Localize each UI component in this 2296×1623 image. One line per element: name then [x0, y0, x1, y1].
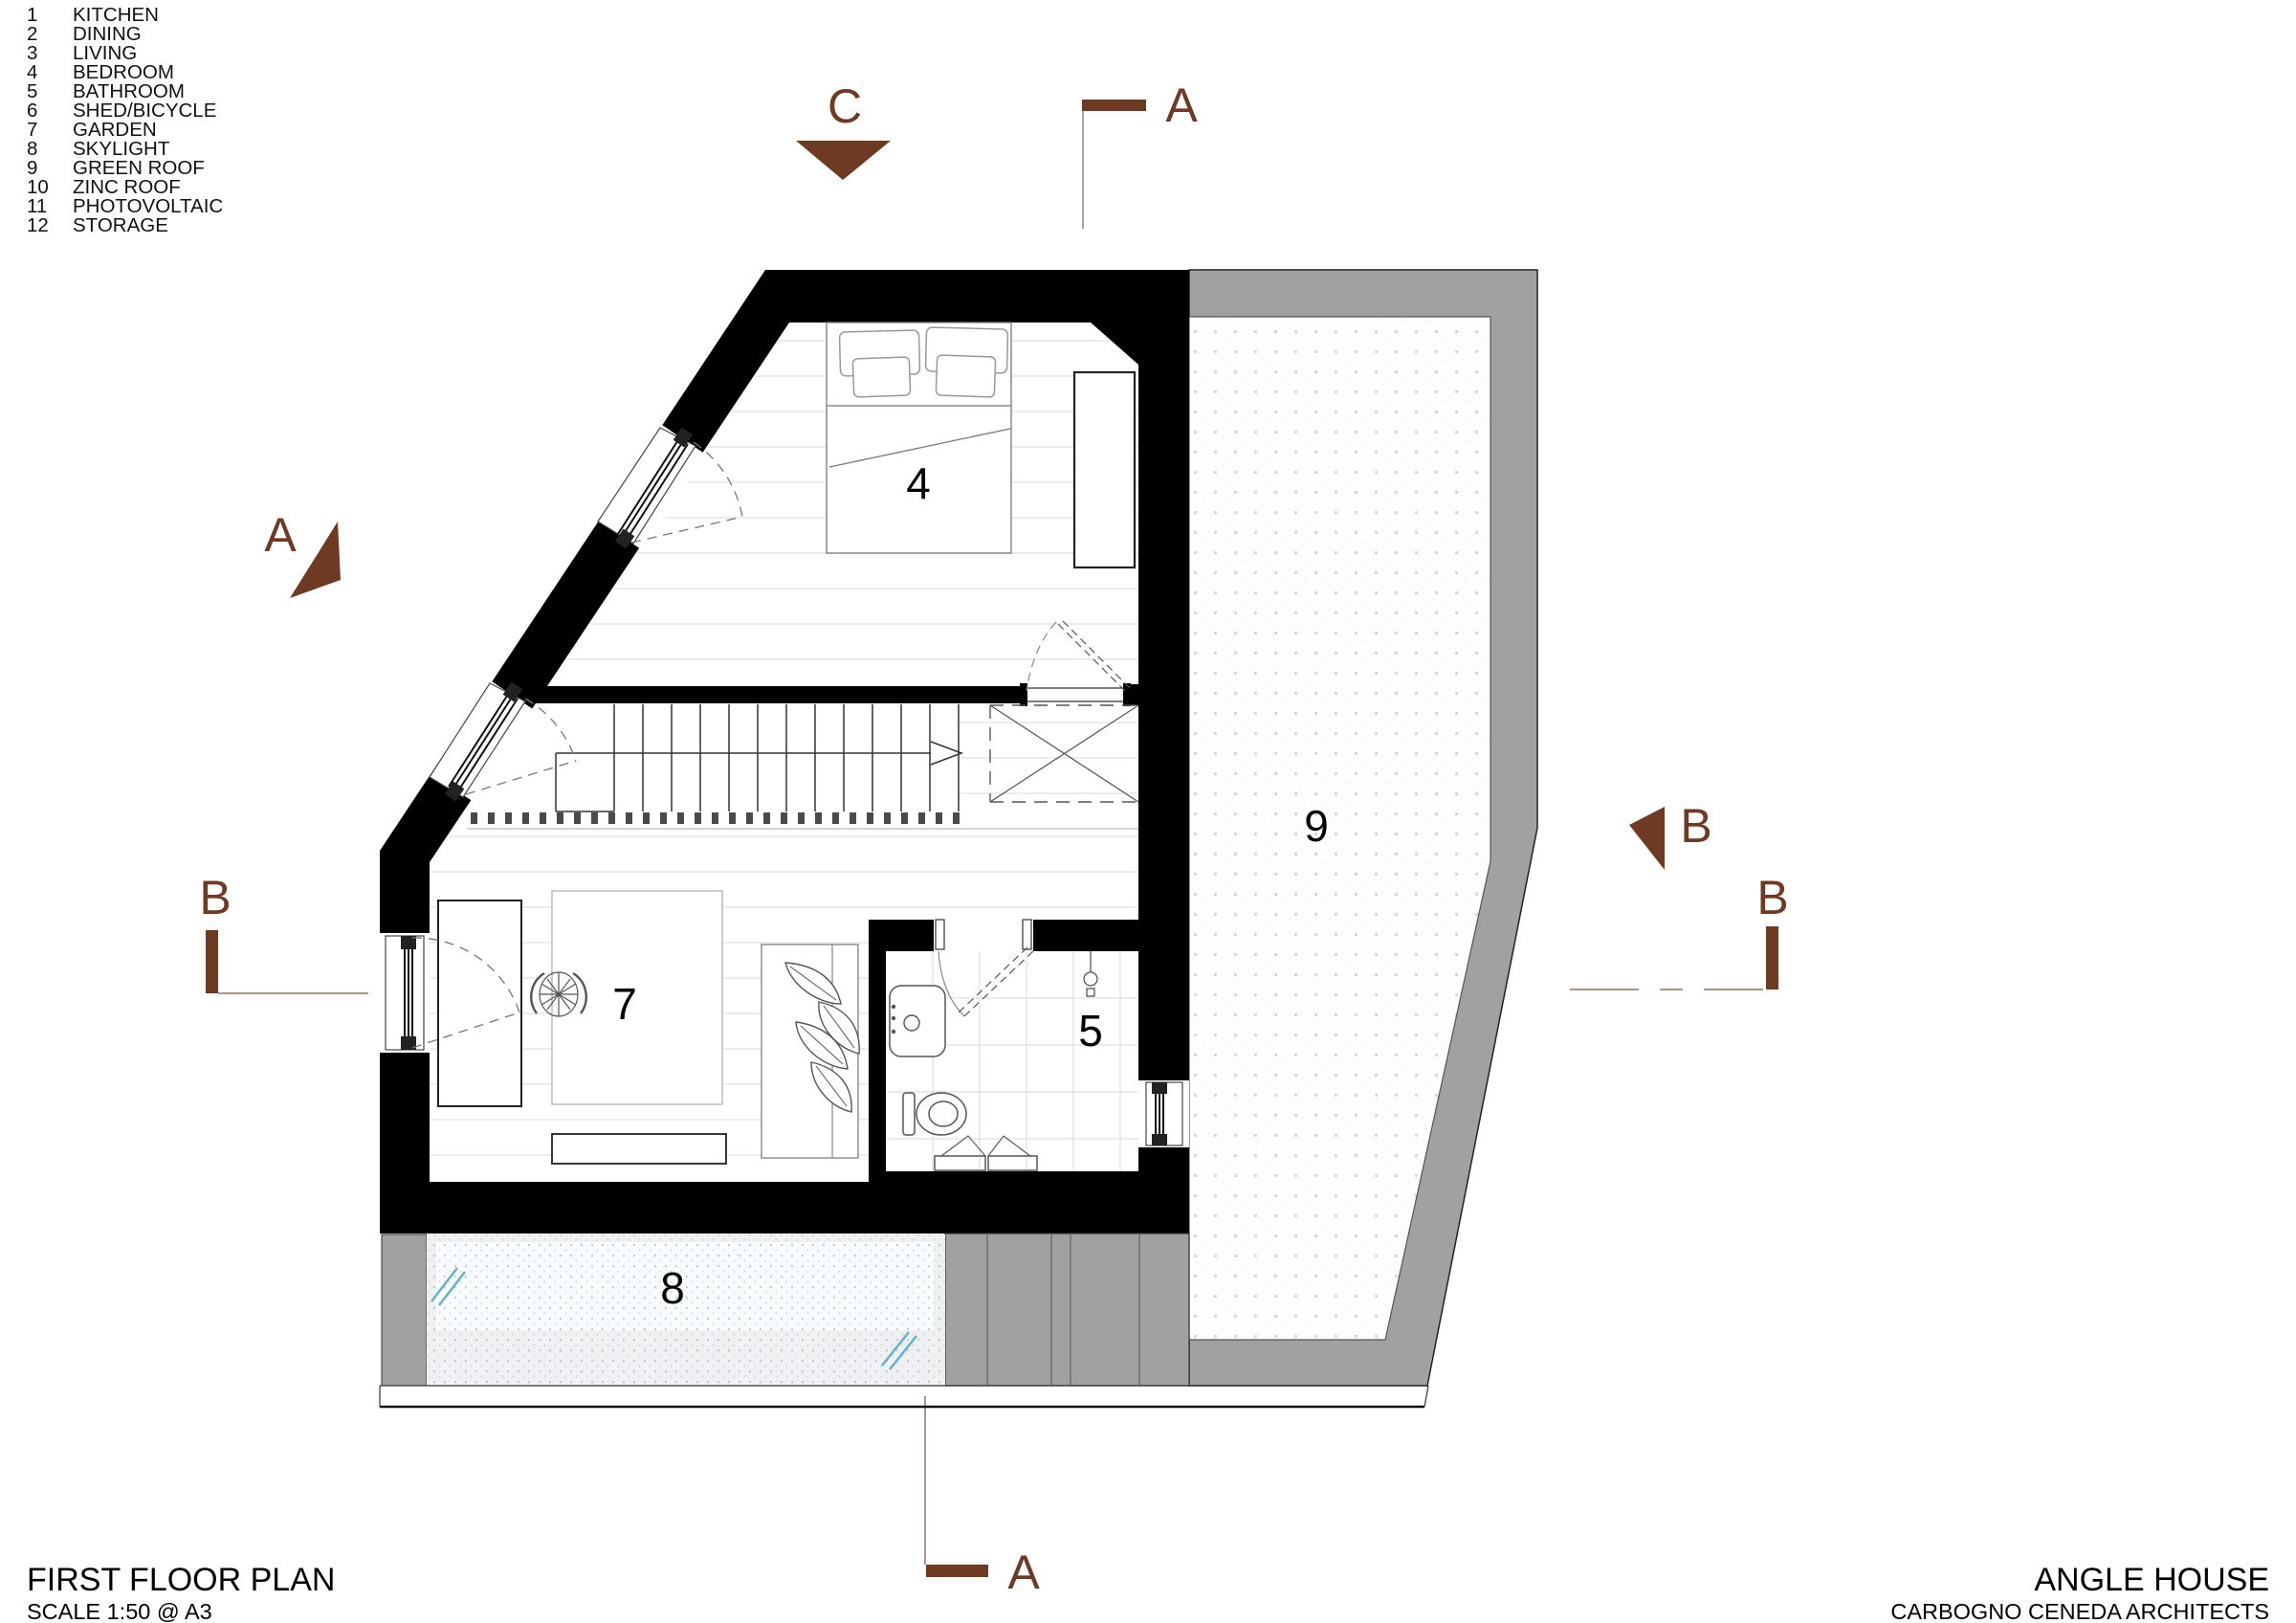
svg-text:7: 7: [612, 979, 637, 1029]
svg-text:CARBOGNO CENEDA ARCHITECTS: CARBOGNO CENEDA ARCHITECTS: [1890, 1599, 2269, 1623]
svg-text:SCALE 1:50 @ A3: SCALE 1:50 @ A3: [27, 1599, 212, 1623]
svg-text:8: 8: [660, 1263, 685, 1313]
svg-text:4: 4: [906, 458, 931, 508]
svg-text:B: B: [199, 871, 231, 924]
svg-text:STORAGE: STORAGE: [73, 214, 168, 236]
svg-text:9: 9: [1304, 801, 1329, 851]
svg-text:B: B: [1680, 799, 1711, 853]
svg-text:A: A: [1007, 1545, 1040, 1599]
svg-text:A: A: [1165, 78, 1198, 132]
svg-text:C: C: [828, 79, 862, 133]
svg-text:B: B: [1756, 871, 1788, 924]
svg-text:ANGLE HOUSE: ANGLE HOUSE: [2034, 1562, 2269, 1598]
svg-text:5: 5: [1078, 1006, 1103, 1056]
svg-text:A: A: [264, 508, 297, 562]
svg-text:12: 12: [27, 214, 49, 236]
svg-text:FIRST FLOOR PLAN: FIRST FLOOR PLAN: [27, 1562, 335, 1598]
